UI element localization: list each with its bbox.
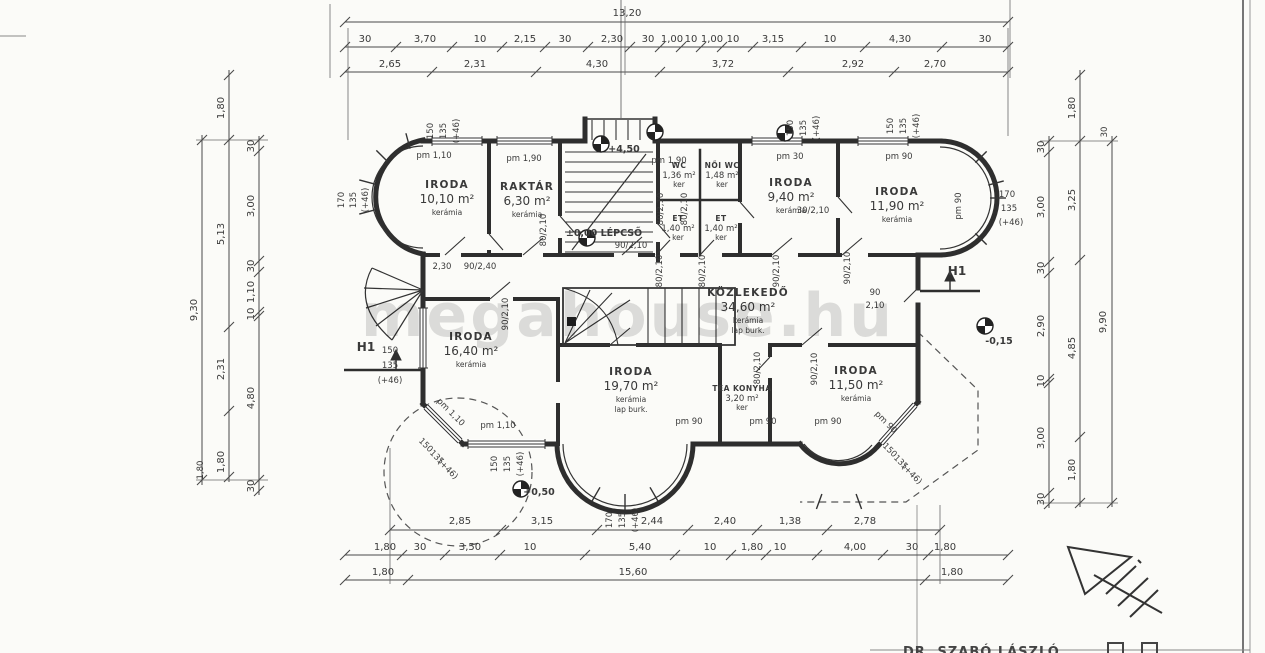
level-label: +0,50 <box>523 487 555 498</box>
room-name: IRODA <box>834 365 878 377</box>
annotation-label: (+46) <box>516 452 526 477</box>
dimension-label: 30 <box>414 542 427 553</box>
dimension-label: 1,80 <box>216 97 227 119</box>
annotation-label: pm 1,10 <box>416 151 451 161</box>
room-finish: ker <box>716 180 729 189</box>
dimension-label: 30 <box>906 542 919 553</box>
level-label: ±0,00 LÉPCSŐ <box>566 227 642 239</box>
annotation-label: 90/2,40 <box>464 262 497 272</box>
annotation-label: (+46) <box>999 218 1024 228</box>
dimension-label: 3,25 <box>1067 189 1078 211</box>
annotation-label: 170 <box>337 192 347 208</box>
dimension-label: 5,40 <box>629 542 651 553</box>
dimension-label: 2,85 <box>449 516 471 527</box>
room-finish: kerámia <box>456 360 486 369</box>
dimension-label: 1,00 <box>661 34 683 45</box>
annotation-label: 30 <box>1100 127 1110 138</box>
dimension-label: 1,80 <box>1067 97 1078 119</box>
benchmark-icon <box>977 318 993 334</box>
dimension-label: 30 <box>1036 141 1047 154</box>
dimension-label: 1,80 <box>934 542 956 553</box>
annotation-label: 170 <box>605 512 615 528</box>
dimension-label: 5,13 <box>216 223 227 245</box>
room-finish: ker <box>672 233 685 242</box>
annotation-label: (+46) <box>899 462 923 486</box>
room-name: IRODA <box>425 179 469 191</box>
room-area: 11,50 m² <box>829 378 884 392</box>
annotation-label: 135 <box>618 512 628 528</box>
room-finish: kerámia <box>882 215 912 224</box>
room-finish: ker <box>673 180 686 189</box>
dimension-label: 30 <box>979 34 992 45</box>
annotation-label: (+46) <box>435 457 459 481</box>
room-finish: ker <box>736 403 749 412</box>
dimension-label: 10 <box>774 542 787 553</box>
annotation-label: pm 90 <box>749 417 776 427</box>
annotation-label: (+46) <box>452 119 462 144</box>
room-area: 9,40 m² <box>767 190 814 204</box>
room-name: TEA KONYHA <box>712 384 771 393</box>
benchmark-icon <box>593 136 609 152</box>
dimension-label: 10 <box>685 34 698 45</box>
dimension-label: 3,00 <box>1036 196 1047 218</box>
dimension-label: 1,80 <box>372 567 394 578</box>
annotation-label: 135 <box>899 118 909 134</box>
annotation-label: 135 <box>799 120 809 136</box>
room-area: 6,30 m² <box>503 194 550 208</box>
dimension-label: 10 <box>727 34 740 45</box>
room-area: 11,90 m² <box>870 199 925 213</box>
dimension-label: 3,70 <box>414 34 436 45</box>
room-finish: kerámia <box>776 206 806 215</box>
credit-text: DR. SZABÓ LÁSZLÓ <box>903 644 1060 653</box>
annotation-label: 170 <box>999 190 1015 200</box>
room-name: IRODA <box>769 177 813 189</box>
dimension-label: 2,90 <box>1036 315 1047 337</box>
dimension-label: 4,80 <box>246 387 257 409</box>
dimension-label: 4,30 <box>586 59 608 70</box>
annotation-label: 150 <box>490 456 500 472</box>
room-finish: kerámia <box>616 395 646 404</box>
annotation-label: (+46) <box>812 116 822 141</box>
annotation-label: 90/2,10 <box>615 241 648 251</box>
north-arrow-icon <box>1068 547 1162 617</box>
dimension-label: 30 <box>642 34 655 45</box>
dimension-label: 2,92 <box>842 59 864 70</box>
room-finish: kerámia <box>512 210 542 219</box>
annotation-label: 150 <box>786 120 796 136</box>
dimension-label: 30 <box>246 260 257 273</box>
annotation-label: 135 <box>1001 204 1017 214</box>
level-label: -0,15 <box>985 336 1012 347</box>
dimension-label: 1,80 <box>1067 459 1078 481</box>
floor-plan-page: 13,20303,70102,15302,30301,00101,00103,1… <box>0 0 1265 653</box>
room-finish: ker <box>715 233 728 242</box>
benchmark-icon <box>647 124 663 140</box>
annotation-label: 135 <box>439 123 449 139</box>
annotation-label: (+46) <box>361 188 371 213</box>
dimension-label: 30 <box>1036 493 1047 506</box>
dimension-label: 2,15 <box>514 34 536 45</box>
annotation-label: 135 <box>503 456 513 472</box>
dimension-label: 1,80 <box>741 542 763 553</box>
annotation-label: pm 90 <box>885 152 912 162</box>
room-name: WC <box>672 161 687 170</box>
annotation-label: 1,80 <box>196 461 206 480</box>
annotation-label: pm 30 <box>776 152 803 162</box>
dimension-label: 1,00 <box>701 34 723 45</box>
dimension-label: 1,10 <box>246 281 257 303</box>
dimension-label: 2,31 <box>216 358 227 380</box>
dimension-label: 10 <box>824 34 837 45</box>
dimension-label: 30 <box>559 34 572 45</box>
dimension-label: 15,60 <box>619 567 648 578</box>
room-finish: kerámia <box>841 394 871 403</box>
dimension-label: 10 <box>704 542 717 553</box>
annotation-label: pm 90 <box>814 417 841 427</box>
dimension-label: 10 <box>246 308 257 321</box>
annotation-label: 80/2,10 <box>753 352 763 385</box>
room-finish: lap burk. <box>614 405 647 414</box>
room-finish: kerámia <box>432 208 462 217</box>
dimension-label: 30 <box>246 140 257 153</box>
dimension-label: 3,00 <box>1036 427 1047 449</box>
dimension-label: 30 <box>1036 262 1047 275</box>
room-name: NŐI WC <box>705 161 740 170</box>
dimension-label: 3,15 <box>762 34 784 45</box>
dimension-label: 3,50 <box>459 542 481 553</box>
annotation-label: 2,30 <box>433 262 452 272</box>
annotation-label: pm 1,90 <box>506 154 541 164</box>
room-area: 19,70 m² <box>604 379 659 393</box>
dimension-label: 9,30 <box>189 299 200 321</box>
dimension-label: 3,00 <box>246 195 257 217</box>
dimension-label: 2,78 <box>854 516 876 527</box>
annotation-label: (+46) <box>631 508 641 533</box>
room-name: IRODA <box>875 186 919 198</box>
dimension-label: 30 <box>359 34 372 45</box>
annotation-label: 150 <box>886 118 896 134</box>
floor-plan-canvas: 13,20303,70102,15302,30301,00101,00103,1… <box>0 0 1265 653</box>
stamp-squares <box>1108 643 1157 653</box>
dimension-label: 4,00 <box>844 542 866 553</box>
annotation-label: 150 <box>426 123 436 139</box>
dimension-label: 2,30 <box>601 34 623 45</box>
dimension-label: 1,80 <box>216 451 227 473</box>
annotation-label: 135 <box>382 361 398 371</box>
dimension-label: 1,38 <box>779 516 801 527</box>
dimension-label: 1,80 <box>374 542 396 553</box>
annotation-label: pm 90 <box>675 417 702 427</box>
watermark-text: megahouse.hu <box>361 281 895 351</box>
dimension-label: 4,85 <box>1067 337 1078 359</box>
dimension-label: 2,44 <box>641 516 663 527</box>
room-name: IRODA <box>609 366 653 378</box>
dimension-label: 3,72 <box>712 59 734 70</box>
dimension-label: 10 <box>474 34 487 45</box>
dimension-label: 2,70 <box>924 59 946 70</box>
room-area: 10,10 m² <box>420 192 475 206</box>
section-label: H1 <box>948 264 966 278</box>
dimension-label: 2,31 <box>464 59 486 70</box>
dimension-label: 2,40 <box>714 516 736 527</box>
annotation-label: (+46) <box>378 376 403 386</box>
dimension-label: 2,65 <box>379 59 401 70</box>
dimension-label: 10 <box>1036 375 1047 388</box>
dimension-label: 13,20 <box>613 8 642 19</box>
dimension-label: 9,90 <box>1098 311 1109 333</box>
dimension-label: 10 <box>524 542 537 553</box>
annotation-label: 90/2,10 <box>843 252 853 285</box>
room-name: ET <box>672 214 684 223</box>
annotation-label: 90/2,10 <box>810 353 820 386</box>
annotation-label: 135 <box>349 192 359 208</box>
room-name: RAKTÁR <box>500 180 554 193</box>
dimension-label: 3,15 <box>531 516 553 527</box>
level-label: +4,50 <box>608 144 640 155</box>
annotation-label: pm 1,10 <box>480 421 515 431</box>
annotation-label: 80/2,10 <box>656 193 666 226</box>
dimension-label: 4,30 <box>889 34 911 45</box>
annotation-label: pm 90 <box>954 192 964 219</box>
annotation-label: (+46) <box>912 114 922 139</box>
room-name: ET <box>715 214 727 223</box>
dimension-label: 1,80 <box>941 567 963 578</box>
dimension-label: 30 <box>246 480 257 493</box>
